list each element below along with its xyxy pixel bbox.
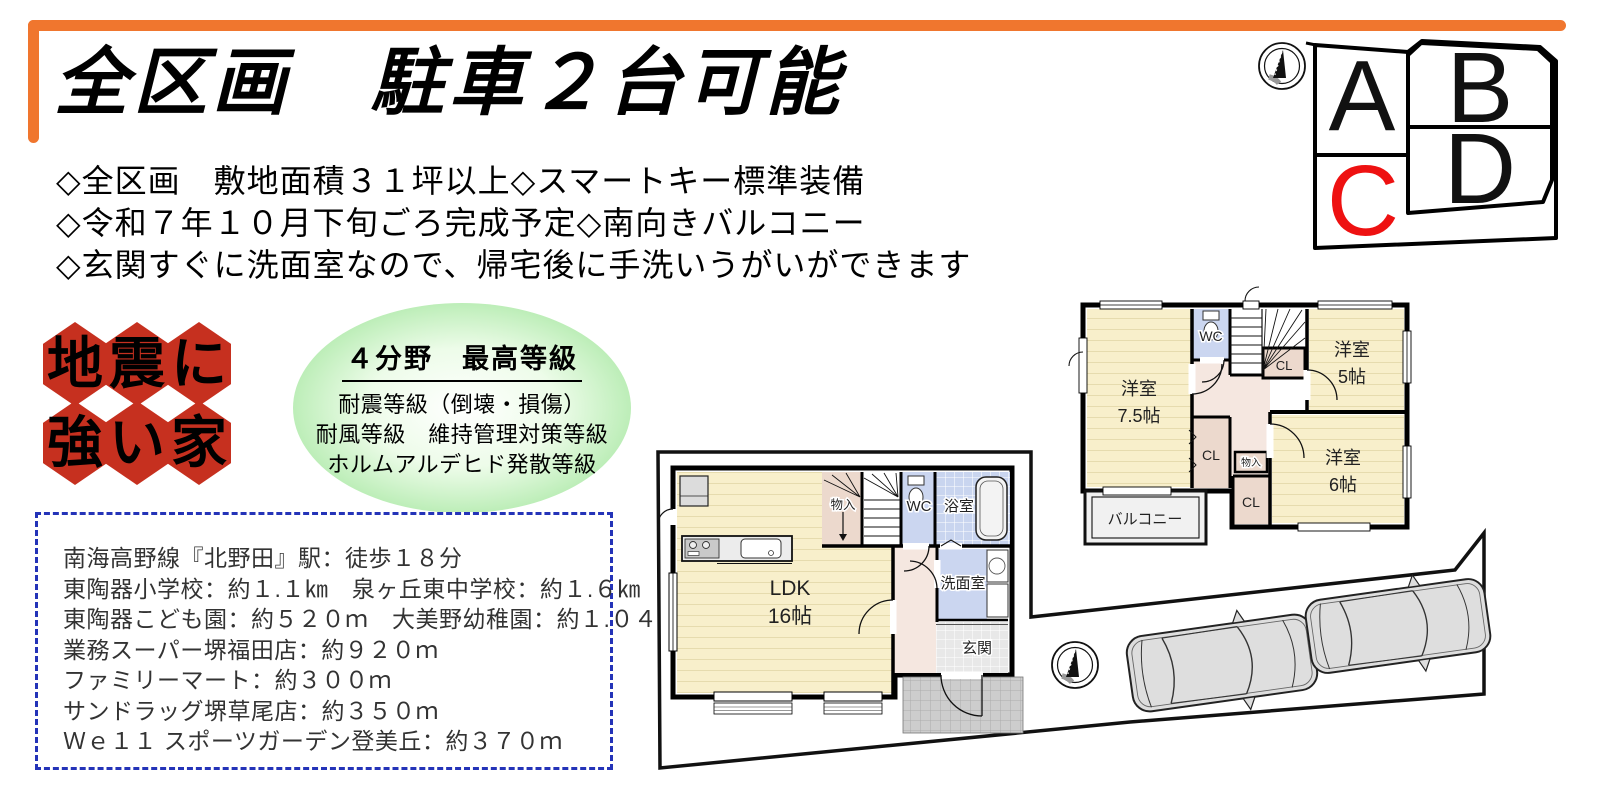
lot-label-a: A <box>1329 40 1396 152</box>
room-label-washroom: 洗面室 <box>940 575 985 592</box>
room-label-cl-top: CL <box>1276 358 1293 373</box>
floor-plan-1f: LDK 16帖 物入 WC 浴室 洗面室 玄関 <box>658 468 1023 733</box>
flyer-canvas: 全区画 駐車２台可能 ◇全区画 敷地面積３１坪以上◇スマートキー標準装備 ◇令和… <box>0 0 1600 800</box>
lot-label-d: D <box>1444 113 1516 225</box>
room-label-cl-bot: CL <box>1242 494 1260 510</box>
floor-plan-2f: 洋室 7.5帖 WC CL 洋室 5帖 CL 物入 洋室 6帖 CL バルコニー <box>1069 287 1411 544</box>
room-label-ldk: LDK <box>770 577 811 600</box>
lot-label-c: C <box>1327 145 1399 257</box>
room-label-storage: 物入 <box>830 498 856 512</box>
plan-drawings: A B C D <box>0 0 1600 800</box>
compass-icon <box>1259 43 1305 89</box>
room-label-balcony: バルコニー <box>1108 511 1183 528</box>
room-label-wc2: WC <box>1199 328 1222 344</box>
room-label-wc: WC <box>907 498 932 515</box>
lot-map: A B C D <box>1259 32 1556 257</box>
compass-icon <box>1052 642 1098 688</box>
room-label-yoshitsu6-size: 6帖 <box>1329 475 1357 495</box>
room-label-yoshitsu75: 洋室 <box>1121 379 1157 399</box>
room-label-entrance: 玄関 <box>962 640 992 657</box>
room-label-bath: 浴室 <box>944 498 974 515</box>
room-label-yoshitsu6: 洋室 <box>1325 448 1361 468</box>
room-label-storage2: 物入 <box>1241 456 1261 469</box>
room-label-ldk-size: 16帖 <box>768 605 812 628</box>
room-label-yoshitsu5-size: 5帖 <box>1338 367 1366 387</box>
room-label-cl-mid: CL <box>1202 447 1220 463</box>
room-label-yoshitsu75-size: 7.5帖 <box>1117 406 1160 426</box>
room-label-yoshitsu5: 洋室 <box>1334 340 1370 360</box>
